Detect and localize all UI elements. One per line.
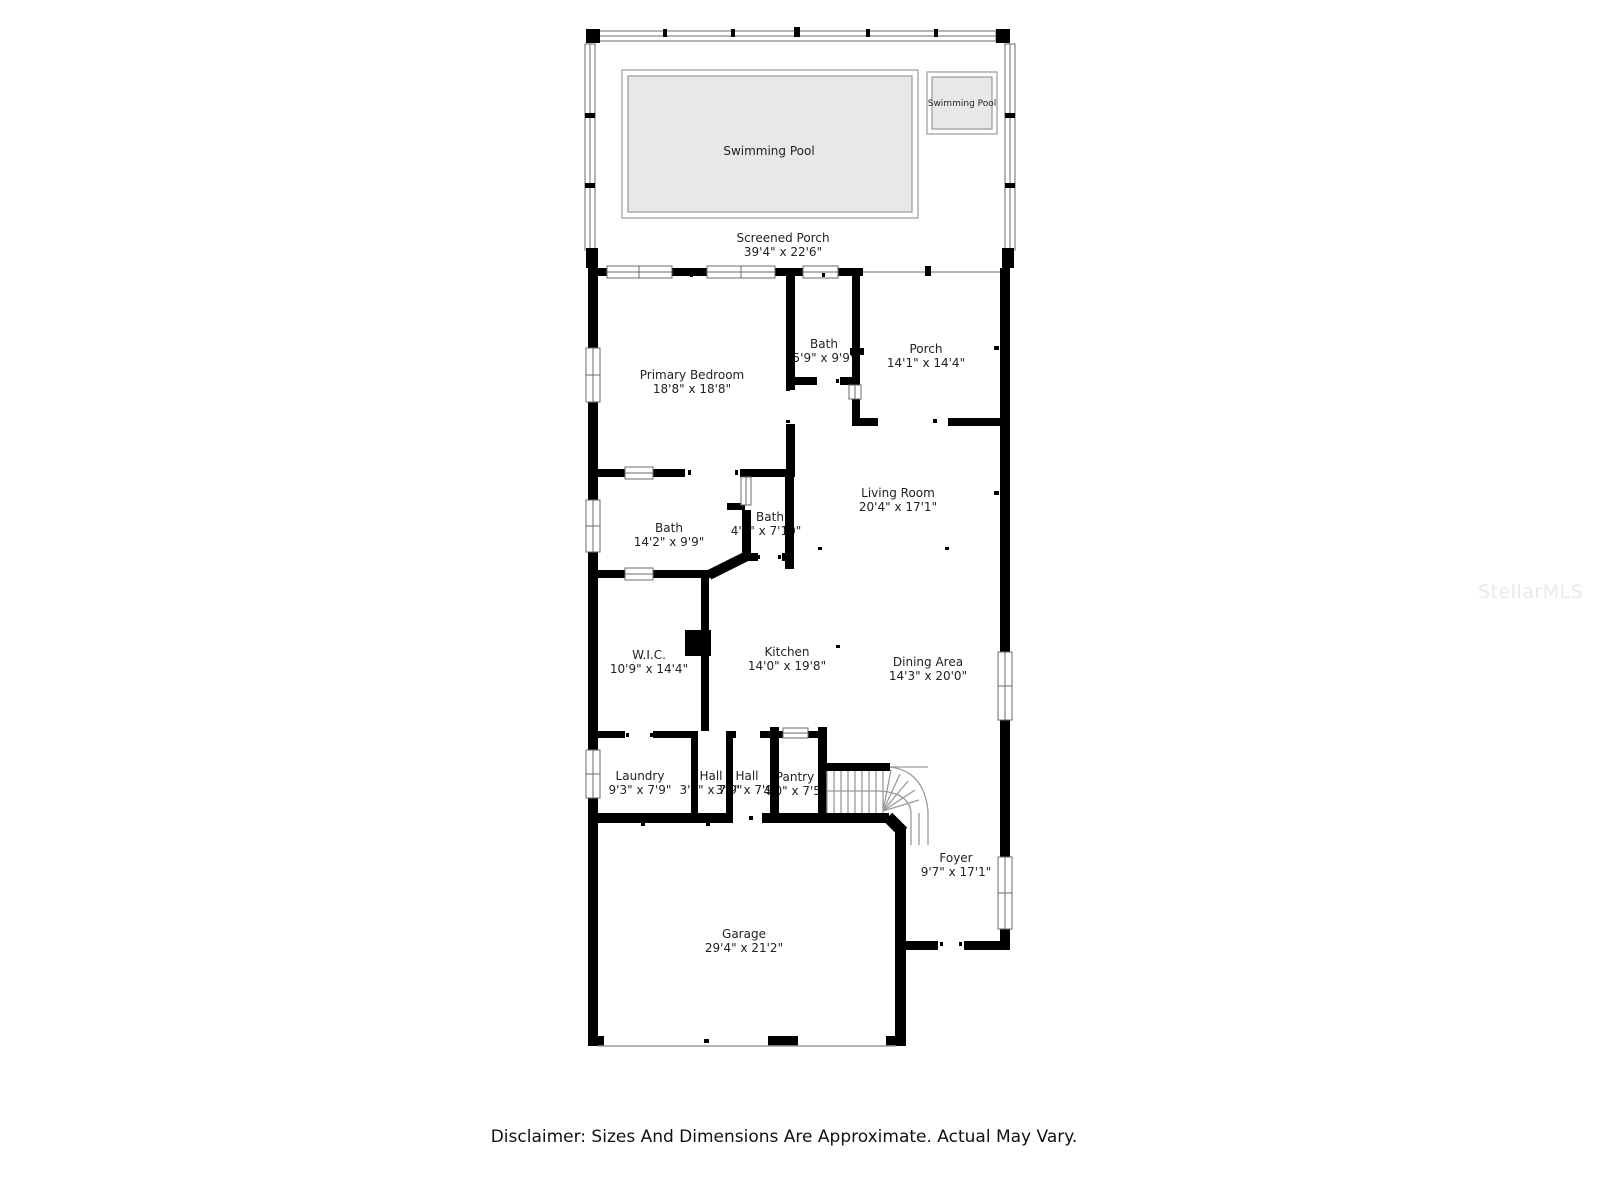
room-label-garage: Garage [722, 927, 766, 941]
room-label-primary-bedroom: Primary Bedroom [640, 368, 744, 382]
foyer-front-wall [964, 941, 1010, 950]
room-dims-primary-bedroom: 18'8" x 18'8" [653, 382, 731, 396]
room-dims-living-room: 20'4" x 17'1" [859, 500, 937, 514]
room-label-screened-porch: Screened Porch [736, 231, 829, 245]
room-label-living-room: Living Room [861, 486, 935, 500]
room-dims-kitchen: 14'0" x 19'8" [748, 659, 826, 673]
room-dims-laundry: 9'3" x 7'9" [609, 783, 672, 797]
screen-post [1002, 248, 1014, 268]
garage-south-wall [588, 1036, 604, 1046]
room-dims-screened-porch: 39'4" x 22'6" [744, 245, 822, 259]
room-dims-bath-2: 14'2" x 9'9" [634, 535, 705, 549]
room-labels: Screened Porch 39'4" x 22'6" Swimming Po… [609, 99, 997, 955]
room-label-foyer: Foyer [939, 851, 972, 865]
screen-post [586, 29, 600, 43]
room-dims-foyer: 9'7" x 17'1" [921, 865, 992, 879]
garage-corner-wall [888, 817, 903, 832]
room-label-laundry: Laundry [616, 769, 665, 783]
room-label-swimming-pool: Swimming Pool [723, 144, 814, 158]
room-label-porch: Porch [909, 342, 942, 356]
room-label-dining-area: Dining Area [893, 655, 963, 669]
room-label-wic: W.I.C. [632, 648, 666, 662]
garage-east-wall [895, 828, 906, 1038]
room-dims-porch: 14'1" x 14'4" [887, 356, 965, 370]
screen-post [996, 29, 1010, 43]
room-dims-wic: 10'9" x 14'4" [610, 662, 688, 676]
room-label-bath-2: Bath [655, 521, 683, 535]
room-label-bath-3: Bath [756, 510, 784, 524]
room-label-kitchen: Kitchen [764, 645, 809, 659]
room-label-swimming-pool-2: Swimming Pool [928, 99, 997, 109]
floor-plan-drawing: Screened Porch 39'4" x 22'6" Swimming Po… [0, 0, 1600, 1200]
screen-post [586, 248, 598, 268]
room-dims-garage: 29'4" x 21'2" [705, 941, 783, 955]
room-dims-bath-1: 5'9" x 9'9" [793, 351, 856, 365]
room-label-hall-1: Hall [699, 769, 722, 783]
floor-plan-page: Screened Porch 39'4" x 22'6" Swimming Po… [0, 0, 1600, 1200]
column-block [685, 630, 711, 656]
room-label-bath-1: Bath [810, 337, 838, 351]
room-dims-dining-area: 14'3" x 20'0" [889, 669, 967, 683]
stair-wall [818, 763, 890, 771]
room-label-hall-2: Hall [735, 769, 758, 783]
room-label-pantry: Pantry [776, 770, 814, 784]
garage-south-wall [768, 1036, 798, 1046]
stairs [827, 767, 928, 845]
stellar-mls-watermark: StellarMLS [1478, 581, 1583, 603]
east-wall [1000, 268, 1010, 950]
disclaimer-text: Disclaimer: Sizes And Dimensions Are App… [491, 1127, 1078, 1147]
garage-south-wall [886, 1036, 906, 1046]
